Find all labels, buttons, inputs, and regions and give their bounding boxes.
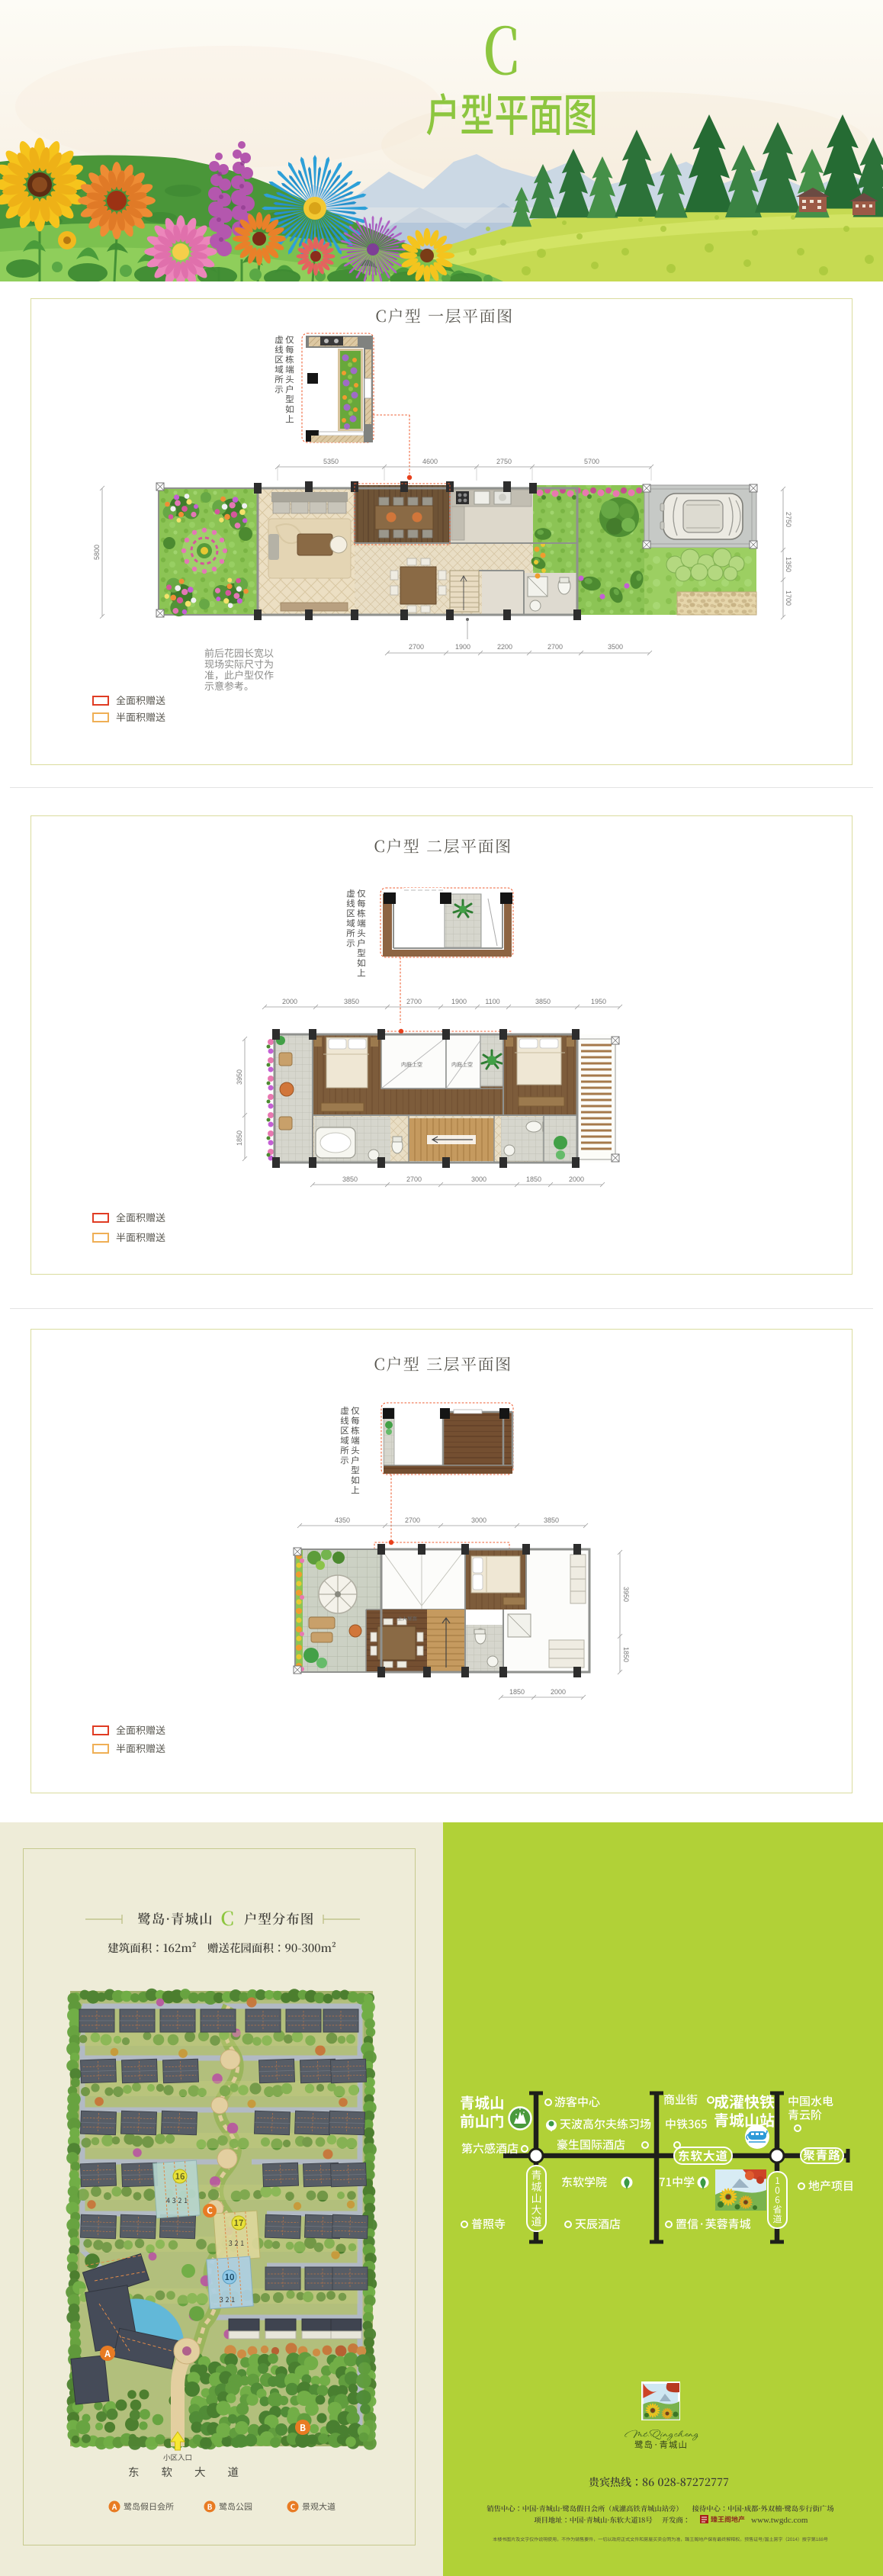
svg-text:www.twgdc.com: www.twgdc.com [751,2516,808,2525]
